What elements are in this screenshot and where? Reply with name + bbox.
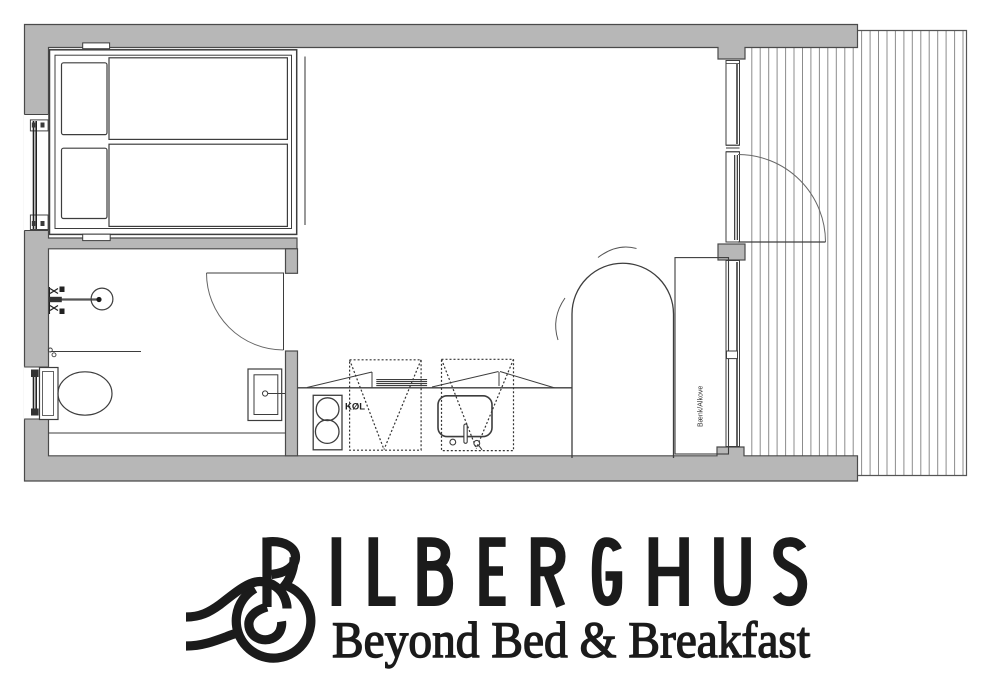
svg-text:KØL: KØL [345, 402, 365, 413]
svg-text:Beyond Bed & Breakfast: Beyond Bed & Breakfast [332, 613, 810, 669]
svg-text:Bænk/Alkove: Bænk/Alkove [698, 386, 705, 427]
